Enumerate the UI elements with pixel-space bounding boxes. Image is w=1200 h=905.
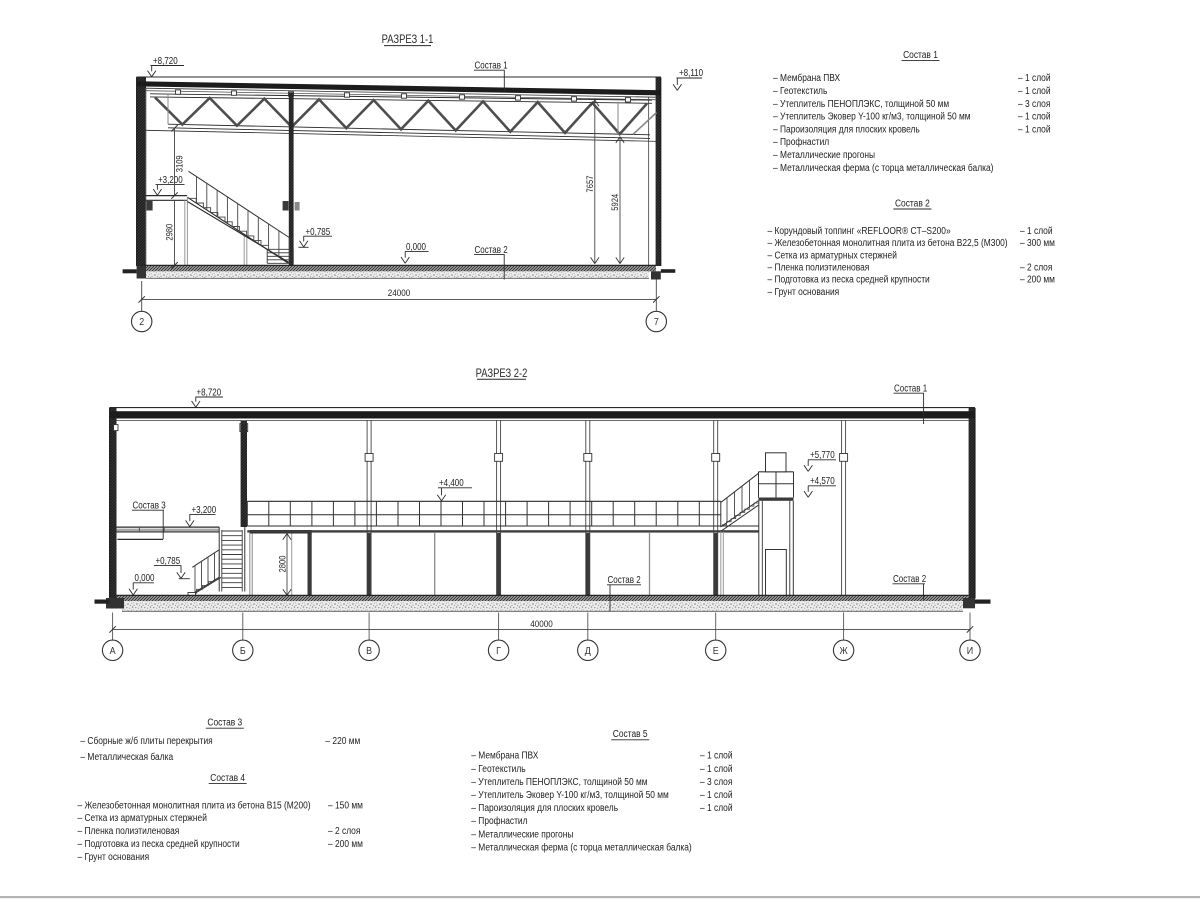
svg-text:– Геотекстиль: – Геотекстиль <box>773 85 827 97</box>
svg-text:Д: Д <box>585 645 591 657</box>
svg-text:– 150 мм: – 150 мм <box>328 799 363 811</box>
svg-text:– 200 мм: – 200 мм <box>328 838 363 850</box>
svg-text:– Металлическая ферма (с торца: – Металлическая ферма (с торца металличе… <box>471 842 691 854</box>
svg-text:Состав 2: Состав 2 <box>475 244 508 255</box>
svg-text:– Утеплитель Эковер Y-100 кг/м: – Утеплитель Эковер Y-100 кг/м3, толщино… <box>471 789 668 801</box>
svg-text:– 1 слой: – 1 слой <box>700 789 733 801</box>
svg-text:– 1 слой: – 1 слой <box>1018 72 1051 84</box>
svg-text:И: И <box>967 645 973 657</box>
svg-text:– Утеплитель ПЕНОПЛЭКС, толщин: – Утеплитель ПЕНОПЛЭКС, толщиной 50 мм <box>471 776 647 788</box>
svg-text:А: А <box>110 645 116 657</box>
svg-text:– 1 слой: – 1 слой <box>700 750 733 762</box>
svg-text:+3,200: +3,200 <box>158 174 183 185</box>
svg-text:Состав 2: Состав 2 <box>895 198 930 210</box>
svg-text:– 2 слоя: – 2 слоя <box>1020 262 1052 274</box>
svg-text:Состав 4: Состав 4 <box>210 772 245 784</box>
svg-text:+5,770: +5,770 <box>810 449 835 460</box>
svg-text:Состав 1: Состав 1 <box>475 60 508 71</box>
svg-text:Б: Б <box>240 645 246 657</box>
svg-text:– Утеплитель ПЕНОПЛЭКС, толщин: – Утеплитель ПЕНОПЛЭКС, толщиной 50 мм <box>773 98 949 110</box>
svg-text:– 1 слой: – 1 слой <box>700 763 733 775</box>
svg-text:– Подготовка из песка средней: – Подготовка из песка средней крупности <box>78 838 240 850</box>
svg-text:– Металлические прогоны: – Металлические прогоны <box>471 828 573 840</box>
svg-text:0,000: 0,000 <box>135 572 155 583</box>
svg-text:Состав 2: Состав 2 <box>608 574 641 585</box>
svg-text:– Пароизоляция для плоских кро: – Пароизоляция для плоских кровель <box>773 124 920 136</box>
svg-text:Состав 5: Состав 5 <box>613 728 648 740</box>
svg-text:24000: 24000 <box>388 288 411 299</box>
svg-text:– Грунт основания: – Грунт основания <box>768 286 840 298</box>
svg-text:3109: 3109 <box>174 155 185 172</box>
svg-text:– Грунт основания: – Грунт основания <box>78 851 150 863</box>
svg-text:– Профнастил: – Профнастил <box>471 815 527 827</box>
svg-text:– Пароизоляция для плоских кро: – Пароизоляция для плоских кровель <box>471 802 618 814</box>
svg-text:– 1 слой: – 1 слой <box>1018 111 1051 123</box>
svg-text:– Утеплитель Эковер Y-100 кг/м: – Утеплитель Эковер Y-100 кг/м3, толщино… <box>773 111 970 123</box>
svg-text:– Сборные ж/б плиты перекрытия: – Сборные ж/б плиты перекрытия <box>80 735 212 747</box>
svg-text:Состав 3: Состав 3 <box>207 717 242 729</box>
svg-text:– 2 слоя: – 2 слоя <box>328 825 360 837</box>
svg-text:– 3 слоя: – 3 слоя <box>1018 98 1050 110</box>
svg-text:– Металлическая балка: – Металлическая балка <box>80 751 173 763</box>
svg-text:7657: 7657 <box>584 175 595 192</box>
svg-text:РАЗРЕЗ 1-1: РАЗРЕЗ 1-1 <box>382 33 434 46</box>
svg-text:– Мембрана ПВХ: – Мембрана ПВХ <box>773 72 841 84</box>
svg-text:+0,785: +0,785 <box>306 226 331 237</box>
svg-text:В: В <box>366 645 372 657</box>
svg-text:РАЗРЕЗ 2-2: РАЗРЕЗ 2-2 <box>476 367 528 380</box>
svg-text:– Корундовый топпинг «REFLOOR®: – Корундовый топпинг «REFLOOR® CT–S200» <box>768 225 951 237</box>
svg-text:0,000: 0,000 <box>406 241 426 252</box>
svg-text:Состав 1: Состав 1 <box>903 49 938 61</box>
svg-text:– Профнастил: – Профнастил <box>773 136 829 148</box>
svg-text:– Железобетонная монолитная п: – Железобетонная монолитная плита из бет… <box>768 237 1008 249</box>
svg-text:Е: Е <box>713 645 719 657</box>
svg-text:– Геотекстиль: – Геотекстиль <box>471 763 525 775</box>
svg-text:– 1 слой: – 1 слой <box>1018 85 1051 97</box>
svg-text:5924: 5924 <box>609 194 620 211</box>
svg-text:+0,785: +0,785 <box>156 555 181 566</box>
svg-text:+4,400: +4,400 <box>439 477 464 488</box>
svg-text:– Металлическая ферма (с торца: – Металлическая ферма (с торца металличе… <box>773 162 993 174</box>
svg-text:+4,570: +4,570 <box>810 475 835 486</box>
svg-text:Ж: Ж <box>839 645 847 657</box>
svg-text:– Подготовка из песка средней: – Подготовка из песка средней крупности <box>768 274 930 286</box>
svg-text:– Металлические прогоны: – Металлические прогоны <box>773 149 875 161</box>
svg-text:2800: 2800 <box>276 555 287 572</box>
svg-text:2980: 2980 <box>163 224 174 241</box>
svg-text:– 1 слой: – 1 слой <box>700 802 733 814</box>
svg-text:+8,720: +8,720 <box>153 55 178 66</box>
svg-text:40000: 40000 <box>530 618 553 629</box>
svg-text:Состав 3: Состав 3 <box>133 500 166 511</box>
svg-text:+8,110: +8,110 <box>679 67 703 78</box>
svg-text:– 200 мм: – 200 мм <box>1020 274 1055 286</box>
svg-text:– Железобетонная монолитная п: – Железобетонная монолитная плита из бет… <box>78 799 311 811</box>
svg-text:– Сетка из арматурных стержней: – Сетка из арматурных стержней <box>78 812 207 824</box>
svg-text:Состав 1: Состав 1 <box>894 383 927 394</box>
svg-text:– Сетка из арматурных стержней: – Сетка из арматурных стержней <box>768 249 897 261</box>
svg-text:– 1 слой: – 1 слой <box>1020 225 1053 237</box>
svg-text:+8,720: +8,720 <box>197 387 222 398</box>
svg-text:Состав 2: Состав 2 <box>893 573 926 584</box>
svg-text:– Пленка полиэтиленовая: – Пленка полиэтиленовая <box>78 825 180 837</box>
svg-text:7: 7 <box>654 316 659 328</box>
svg-text:2: 2 <box>139 316 144 328</box>
svg-text:+3,200: +3,200 <box>192 504 217 515</box>
svg-text:Г: Г <box>496 645 501 657</box>
svg-text:– 220 мм: – 220 мм <box>325 735 360 747</box>
svg-text:– 1 слой: – 1 слой <box>1018 124 1051 136</box>
svg-text:– Мембрана ПВХ: – Мембрана ПВХ <box>471 750 539 762</box>
svg-text:– 300 мм: – 300 мм <box>1020 237 1055 249</box>
svg-text:– Пленка полиэтиленовая: – Пленка полиэтиленовая <box>768 262 870 274</box>
svg-text:– 3 слоя: – 3 слоя <box>700 776 732 788</box>
